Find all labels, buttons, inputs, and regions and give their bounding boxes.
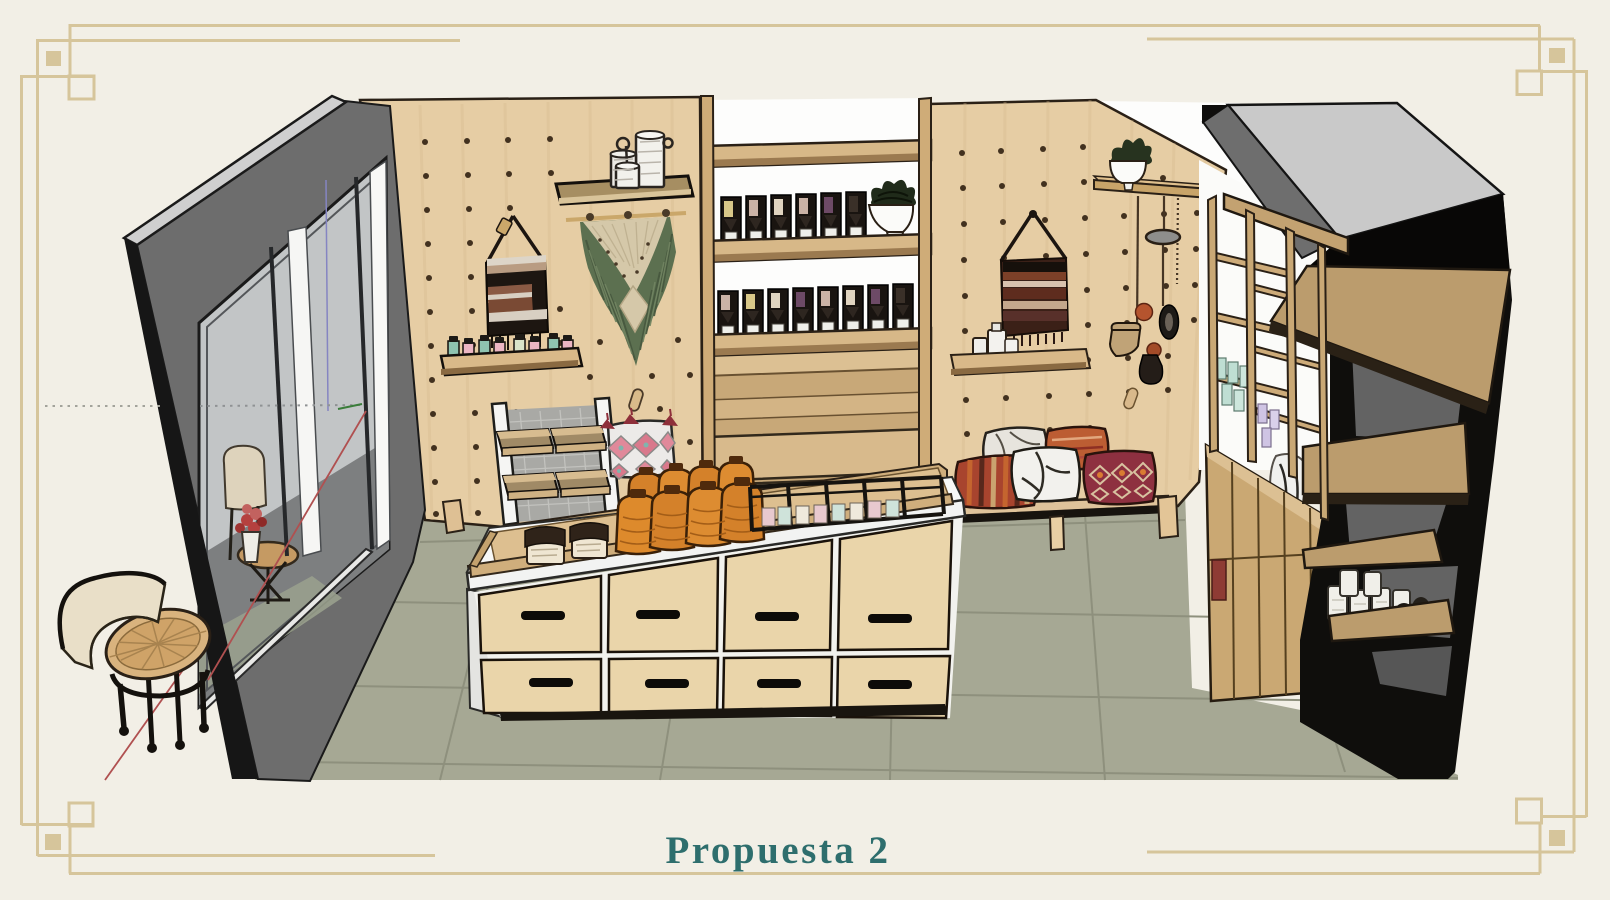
svg-text:Propuesta 2: Propuesta 2 (665, 829, 890, 872)
